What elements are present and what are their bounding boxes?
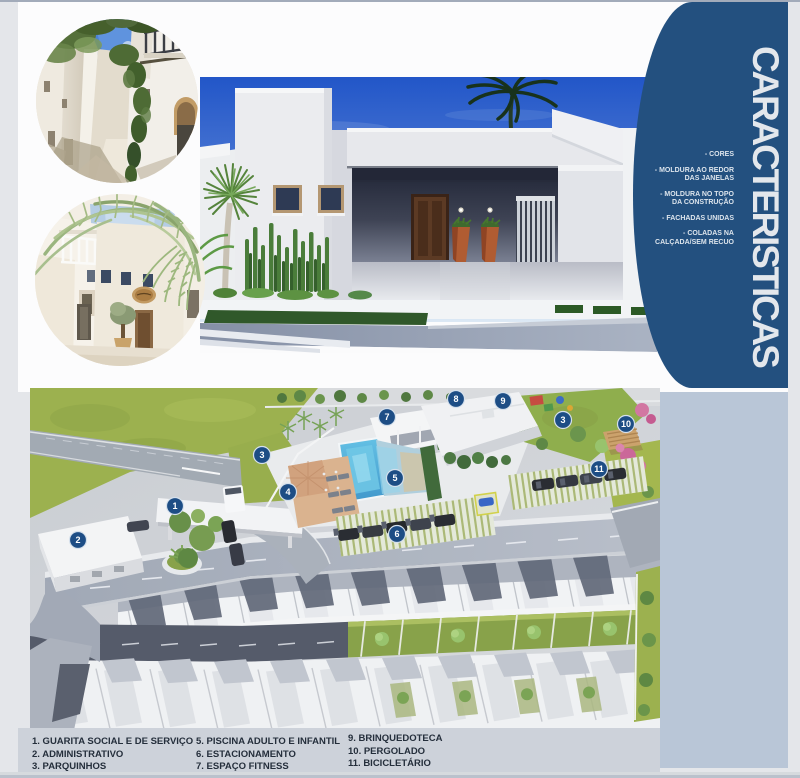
svg-text:10: 10 — [621, 419, 631, 429]
svg-text:11: 11 — [594, 464, 604, 474]
svg-text:6: 6 — [394, 529, 399, 539]
svg-text:1: 1 — [172, 501, 177, 511]
svg-text:2: 2 — [75, 535, 80, 545]
svg-text:9: 9 — [500, 396, 505, 406]
svg-text:5: 5 — [392, 473, 397, 483]
svg-text:7: 7 — [384, 412, 389, 422]
svg-text:3: 3 — [259, 450, 264, 460]
svg-text:8: 8 — [453, 394, 458, 404]
svg-text:3: 3 — [560, 415, 565, 425]
svg-text:4: 4 — [285, 487, 290, 497]
